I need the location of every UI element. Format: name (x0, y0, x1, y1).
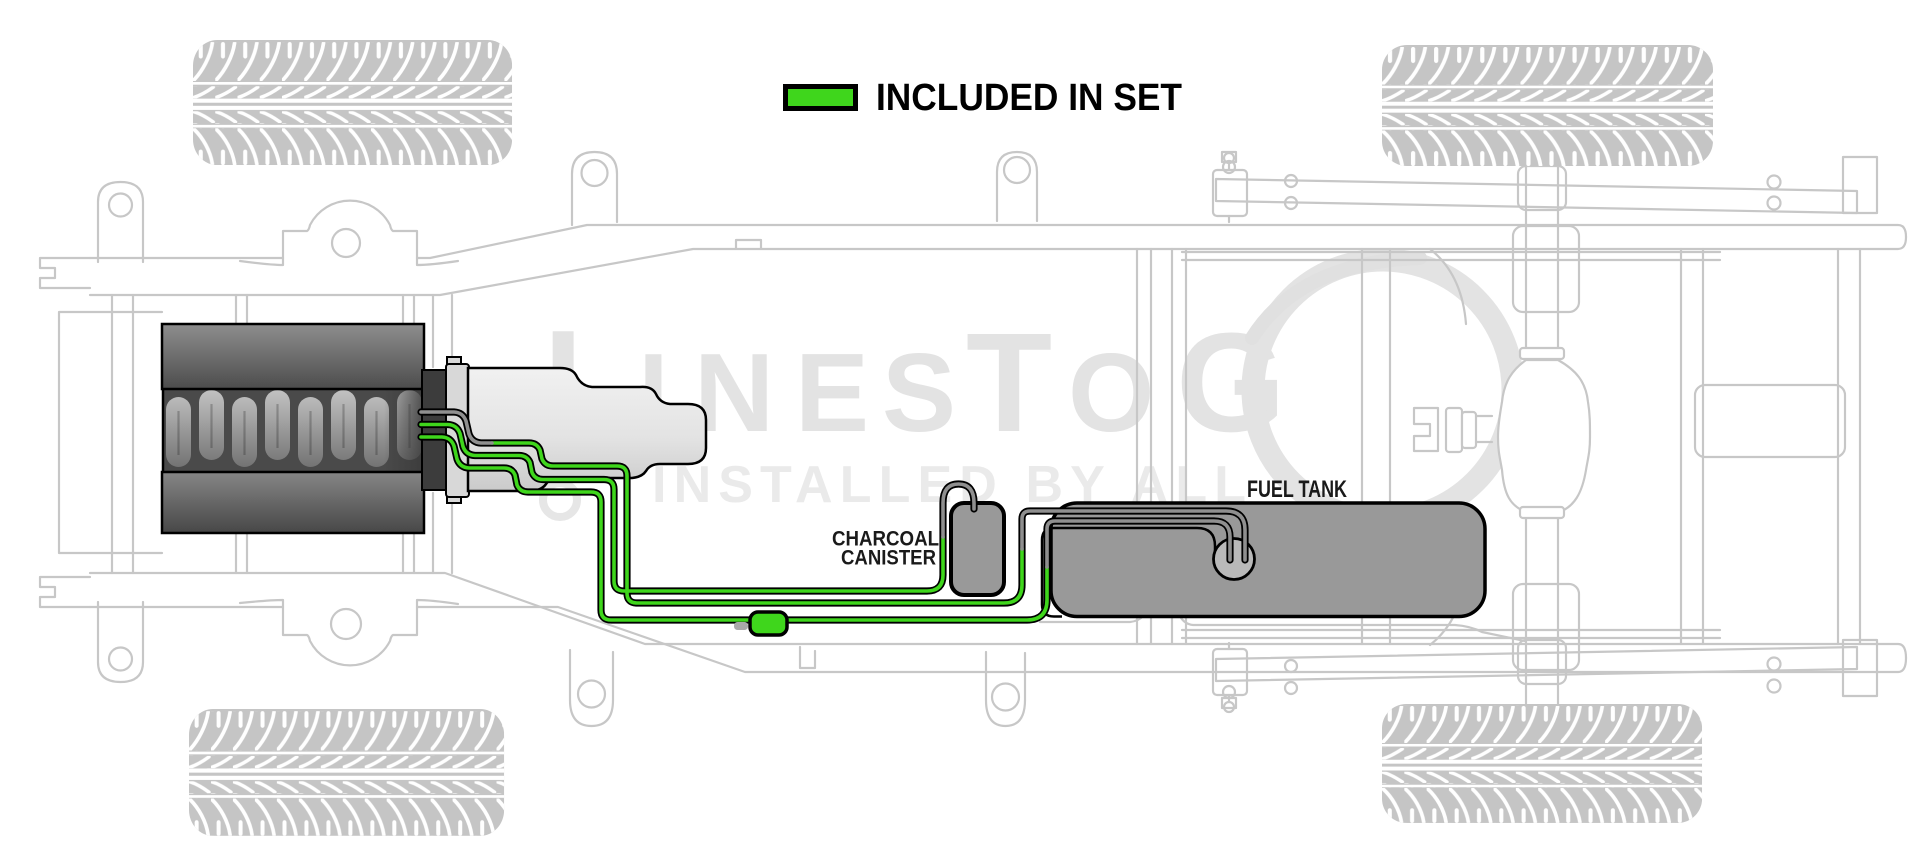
svg-text:CANISTER: CANISTER (841, 547, 936, 570)
svg-text:E: E (795, 331, 869, 455)
svg-text:S: S (882, 331, 956, 455)
svg-text:FUEL TANK: FUEL TANK (1247, 476, 1347, 503)
svg-text:T: T (966, 303, 1052, 461)
svg-text:INCLUDED IN SET: INCLUDED IN SET (876, 77, 1182, 119)
svg-text:O: O (1068, 331, 1154, 455)
